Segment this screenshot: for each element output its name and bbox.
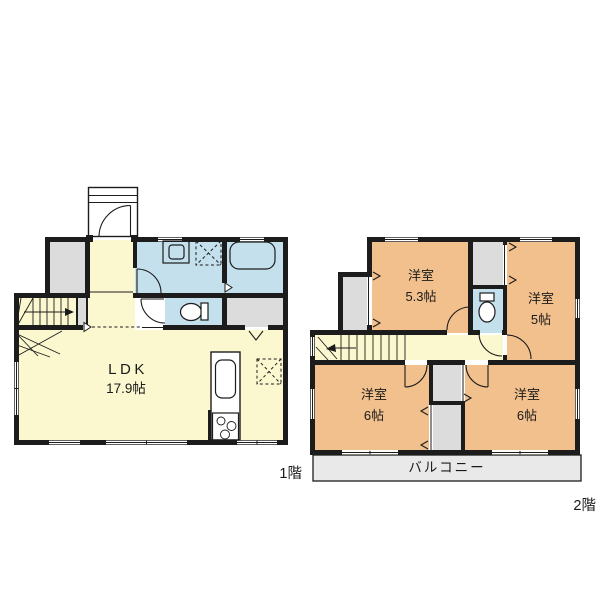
room-washroom <box>135 240 224 295</box>
window <box>311 337 315 356</box>
room5-size: 5帖 <box>531 312 551 327</box>
ldk-name-label: LDK <box>108 361 148 378</box>
room6-left-size: 6帖 <box>364 408 384 423</box>
floor2-plan: 洋室 5.3帖 洋室 5帖 洋室 6帖 洋室 6帖 バルコニー 2階 <box>310 237 596 514</box>
room5-name: 洋室 <box>528 291 554 306</box>
hallway-stairs-2f <box>315 335 503 360</box>
window <box>49 441 80 445</box>
storage-closet-1f <box>224 297 283 327</box>
window <box>520 238 552 242</box>
ldk-size-label: 17.9帖 <box>106 381 146 396</box>
floor1-label: 1階 <box>279 465 302 482</box>
room-entrance-hall <box>88 240 135 330</box>
floor2-label: 2階 <box>573 497 596 514</box>
window <box>576 389 580 419</box>
balcony-label: バルコニー <box>408 460 485 475</box>
floor1-plan: LDK 17.9帖 1階 <box>14 188 302 483</box>
window <box>15 362 19 415</box>
window <box>385 238 418 242</box>
toilet-door-arc <box>141 299 165 323</box>
room5-3-size: 5.3帖 <box>405 289 436 304</box>
window <box>576 299 580 318</box>
window <box>492 451 548 455</box>
floorplan-drawing: LDK 17.9帖 1階 <box>0 0 600 600</box>
closet-2f-top <box>473 242 503 287</box>
room5-3-name: 洋室 <box>408 268 434 283</box>
room-ldk <box>16 330 283 442</box>
closet-2f-center <box>433 365 461 450</box>
entrance-porch <box>86 188 138 243</box>
window <box>240 238 264 242</box>
window <box>311 389 315 419</box>
toilet-icon-2f <box>479 293 495 322</box>
window <box>106 441 187 445</box>
room6-left-name: 洋室 <box>361 387 387 402</box>
floorplan-page: LDK 17.9帖 1階 <box>0 0 600 600</box>
pass-through-opening <box>142 326 163 330</box>
room-yoshitsu-5-3 <box>372 242 468 333</box>
window <box>237 441 277 445</box>
room6-right-name: 洋室 <box>514 387 540 402</box>
window <box>342 451 398 455</box>
toilet-icon-1f <box>181 303 209 321</box>
room6-right-size: 6帖 <box>517 408 537 423</box>
closet-2f-left <box>343 277 367 333</box>
entrance-closet <box>47 240 87 295</box>
